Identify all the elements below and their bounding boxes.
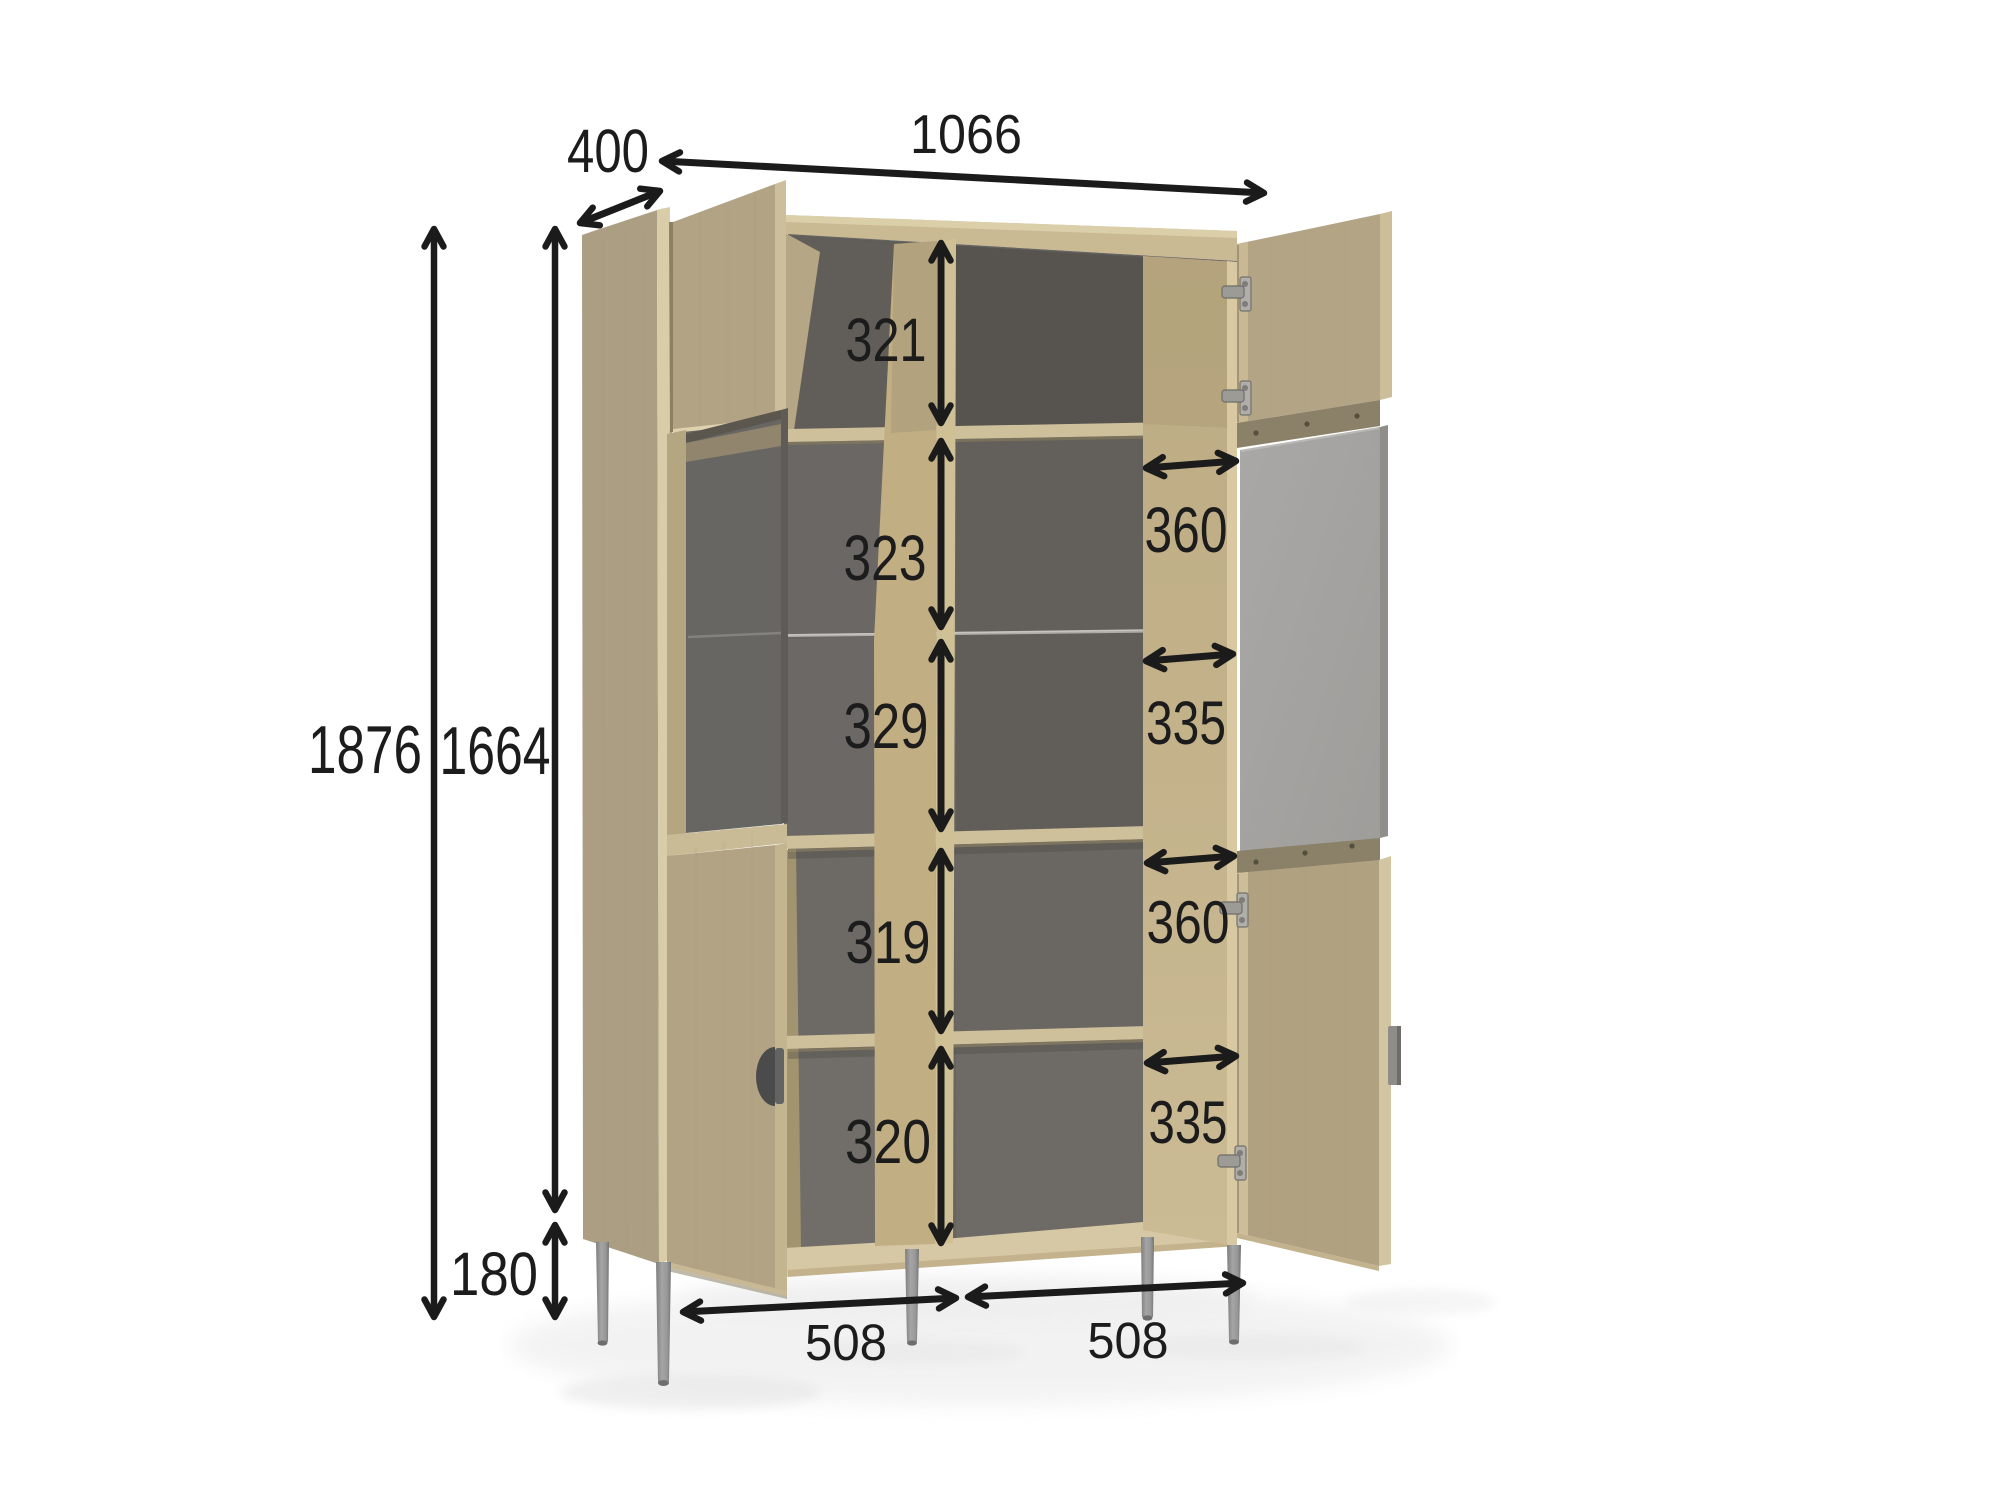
svg-text:320: 320 xyxy=(845,1108,931,1177)
svg-text:1066: 1066 xyxy=(910,103,1022,165)
svg-text:319: 319 xyxy=(846,909,931,976)
svg-text:360: 360 xyxy=(1147,889,1230,956)
svg-text:321: 321 xyxy=(846,306,927,374)
svg-text:508: 508 xyxy=(805,1314,887,1371)
svg-text:1876: 1876 xyxy=(308,712,422,788)
svg-text:360: 360 xyxy=(1145,494,1228,566)
svg-text:180: 180 xyxy=(450,1240,538,1308)
svg-text:335: 335 xyxy=(1149,1089,1228,1156)
svg-text:400: 400 xyxy=(567,117,649,185)
svg-text:1664: 1664 xyxy=(440,713,551,789)
svg-text:329: 329 xyxy=(844,690,929,762)
svg-text:335: 335 xyxy=(1146,689,1226,757)
svg-text:508: 508 xyxy=(1088,1312,1169,1369)
svg-text:323: 323 xyxy=(844,522,927,594)
